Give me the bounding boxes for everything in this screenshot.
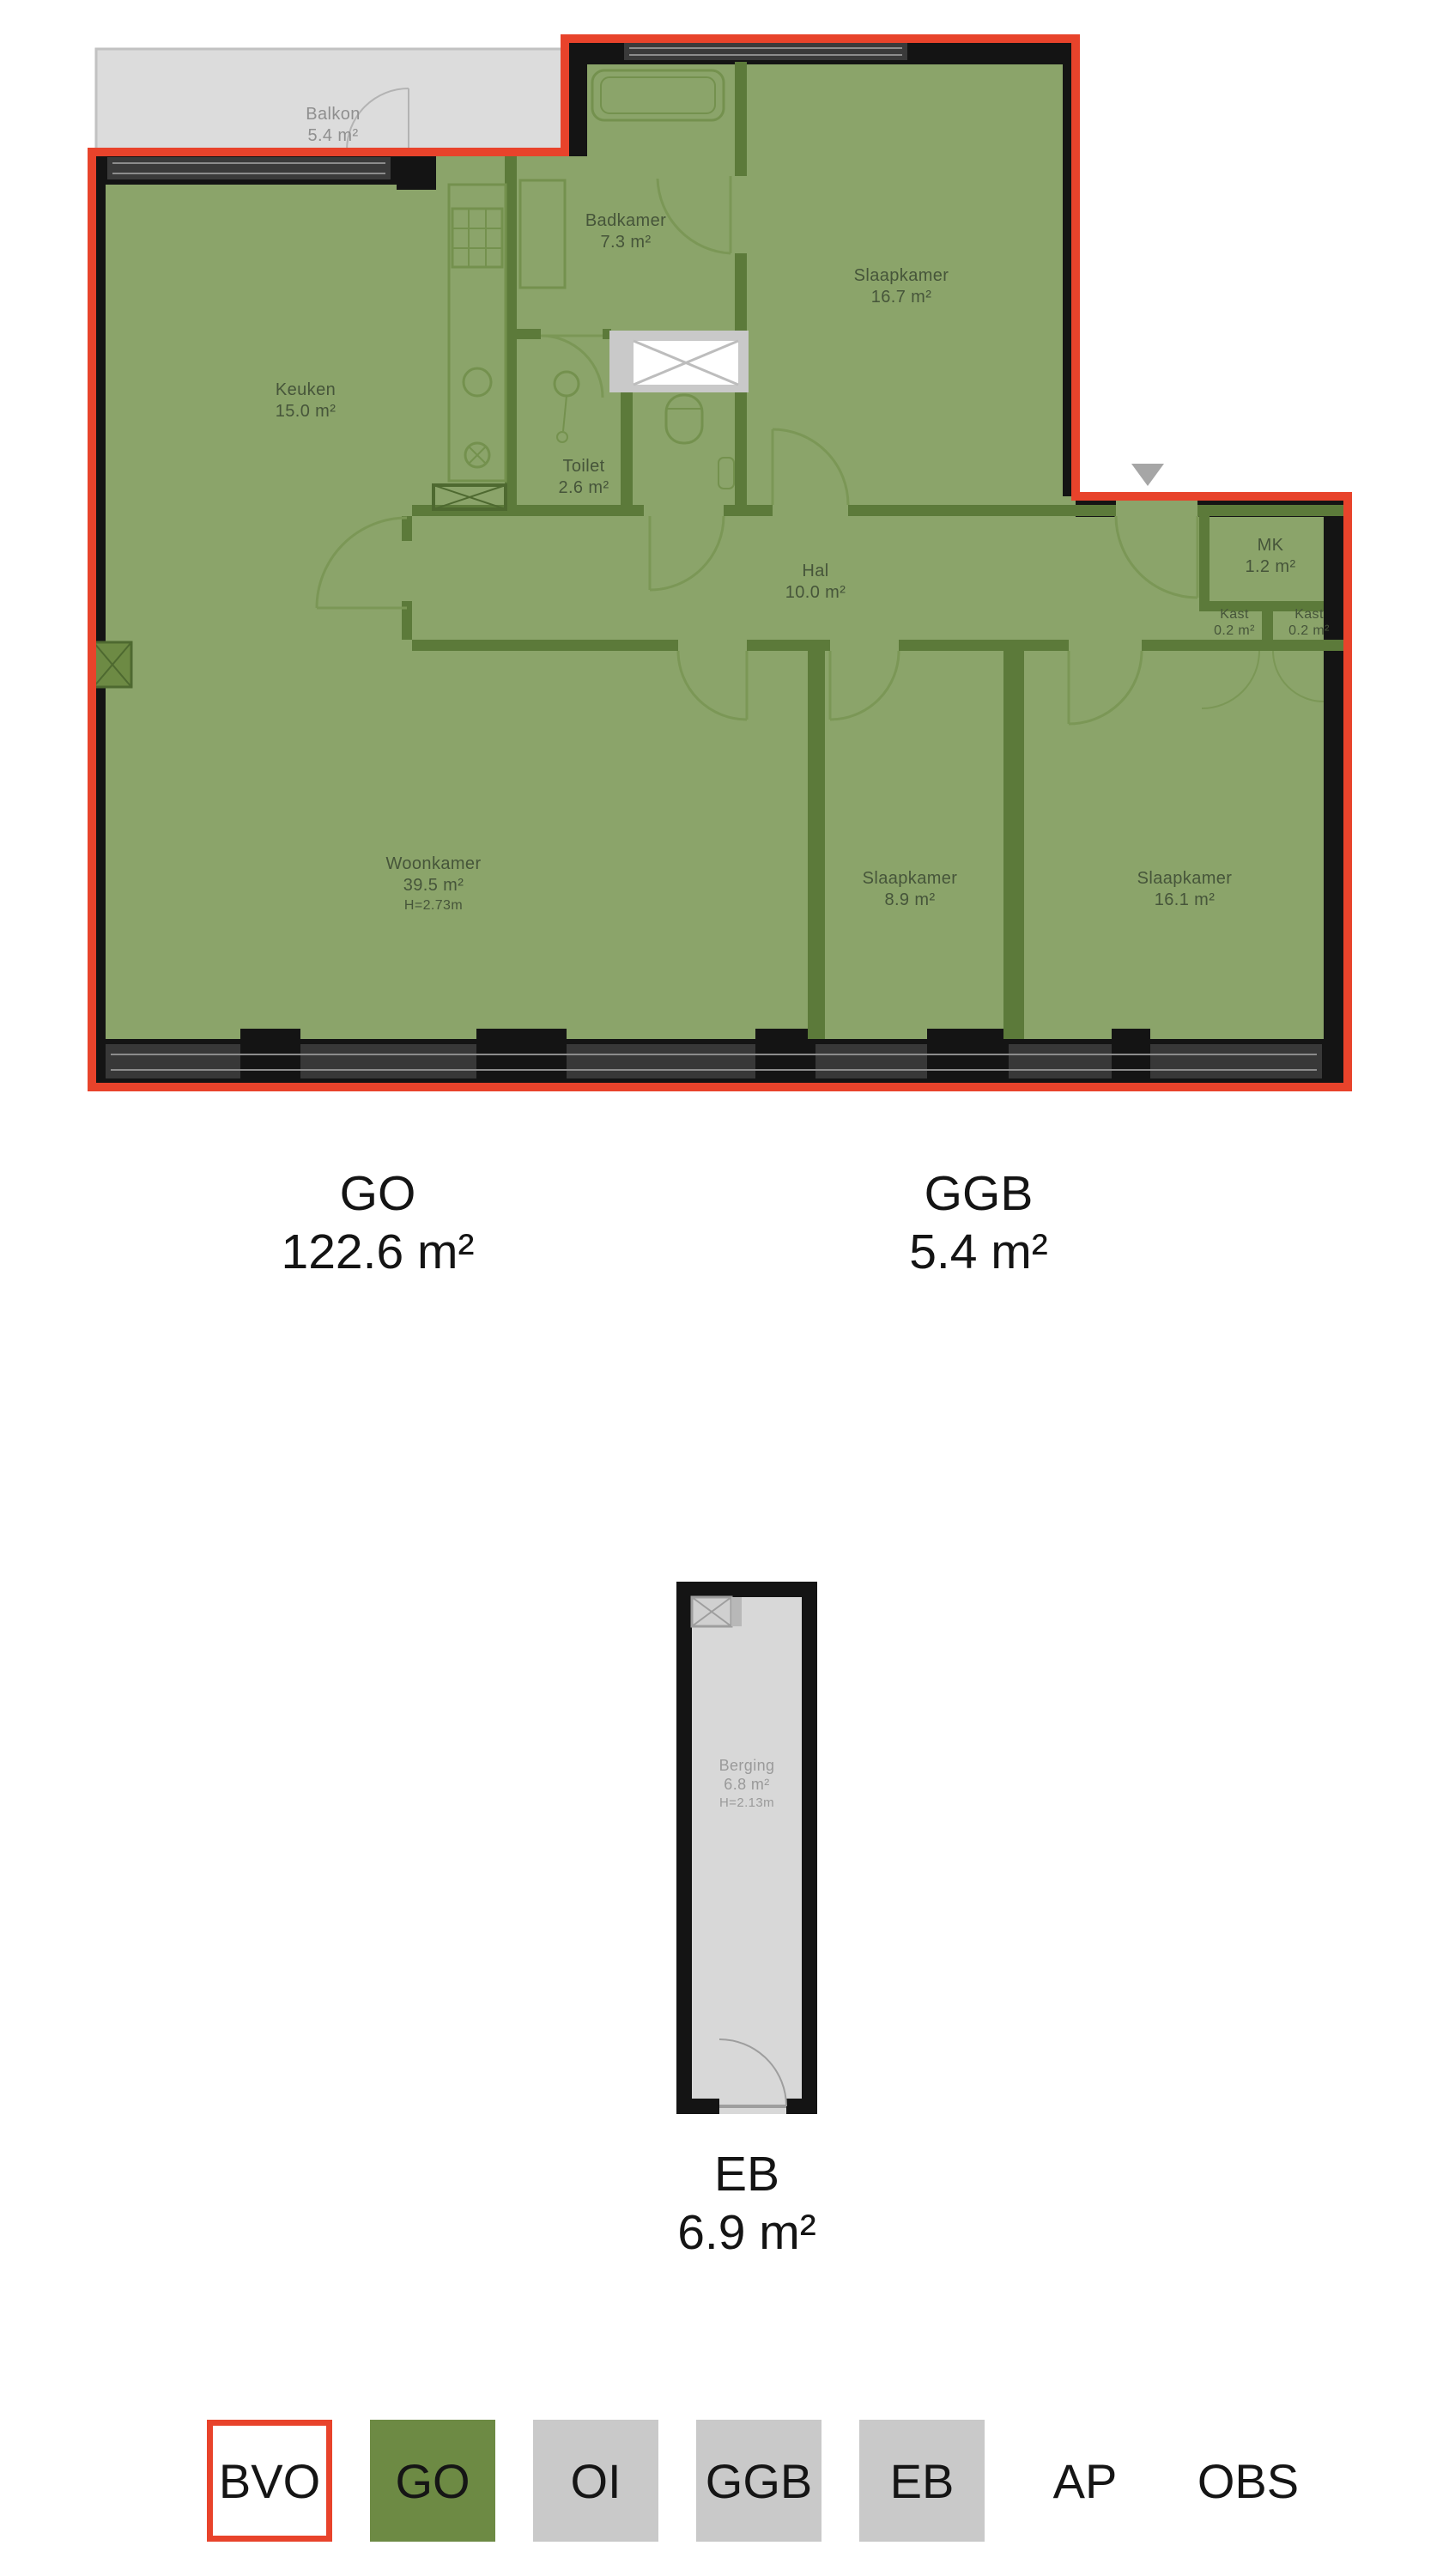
legend-bar: BVO GO OI GGB EB AP OBS: [207, 2420, 1311, 2542]
room-label-kast-1: Kast 0.2 m²: [1214, 606, 1255, 639]
area-label-eb: EB 6.9 m²: [677, 2145, 816, 2262]
room-label-woonkamer: Woonkamer 39.5 m² H=2.73m: [385, 854, 481, 915]
legend-item-obs[interactable]: OBS: [1185, 2420, 1311, 2542]
room-label-balkon: Balkon 5.4 m²: [306, 104, 361, 147]
legend-label-ap: AP: [1053, 2453, 1118, 2509]
legend-item-ap[interactable]: AP: [1022, 2420, 1148, 2542]
area-label-go: GO 122.6 m²: [282, 1164, 475, 1281]
go-area-fill: [96, 39, 1348, 1087]
room-label-toilet: Toilet 2.6 m²: [558, 456, 609, 499]
duct-icon: [94, 642, 131, 687]
legend-item-eb[interactable]: EB: [859, 2420, 985, 2542]
legend-item-oi[interactable]: OI: [533, 2420, 658, 2542]
shaft-icon: [609, 331, 749, 392]
legend-label-eb: EB: [890, 2453, 955, 2509]
room-label-badkamer: Badkamer 7.3 m²: [585, 210, 666, 253]
storage-duct-icon: [692, 1597, 742, 1626]
room-label-slaapkamer-2: Slaapkamer 8.9 m²: [863, 868, 958, 911]
legend-item-bvo[interactable]: BVO: [207, 2420, 332, 2542]
storage-floorplan: [676, 1582, 817, 2114]
main-floorplan: [92, 39, 1348, 1087]
area-label-ggb: GGB 5.4 m²: [909, 1164, 1048, 1281]
legend-label-bvo: BVO: [219, 2453, 320, 2509]
legend-label-go: GO: [395, 2453, 470, 2509]
measurement-report-page: Balkon 5.4 m² Keuken 15.0 m² Badkamer 7.…: [0, 0, 1449, 2576]
legend-item-go[interactable]: GO: [370, 2420, 495, 2542]
triangle-marker-icon: [1131, 464, 1164, 486]
room-label-kast-2: Kast 0.2 m²: [1288, 606, 1330, 639]
legend-label-ggb: GGB: [706, 2453, 812, 2509]
room-label-hal: Hal 10.0 m²: [785, 561, 846, 604]
room-label-slaapkamer-1: Slaapkamer 16.7 m²: [854, 265, 949, 308]
room-label-slaapkamer-3: Slaapkamer 16.1 m²: [1137, 868, 1233, 911]
legend-label-oi: OI: [570, 2453, 621, 2509]
legend-label-obs: OBS: [1197, 2453, 1299, 2509]
legend-item-ggb[interactable]: GGB: [696, 2420, 822, 2542]
room-label-berging: Berging 6.8 m² H=2.13m: [719, 1756, 775, 1813]
room-label-mk: MK 1.2 m²: [1245, 535, 1295, 578]
room-label-keuken: Keuken 15.0 m²: [276, 380, 336, 422]
